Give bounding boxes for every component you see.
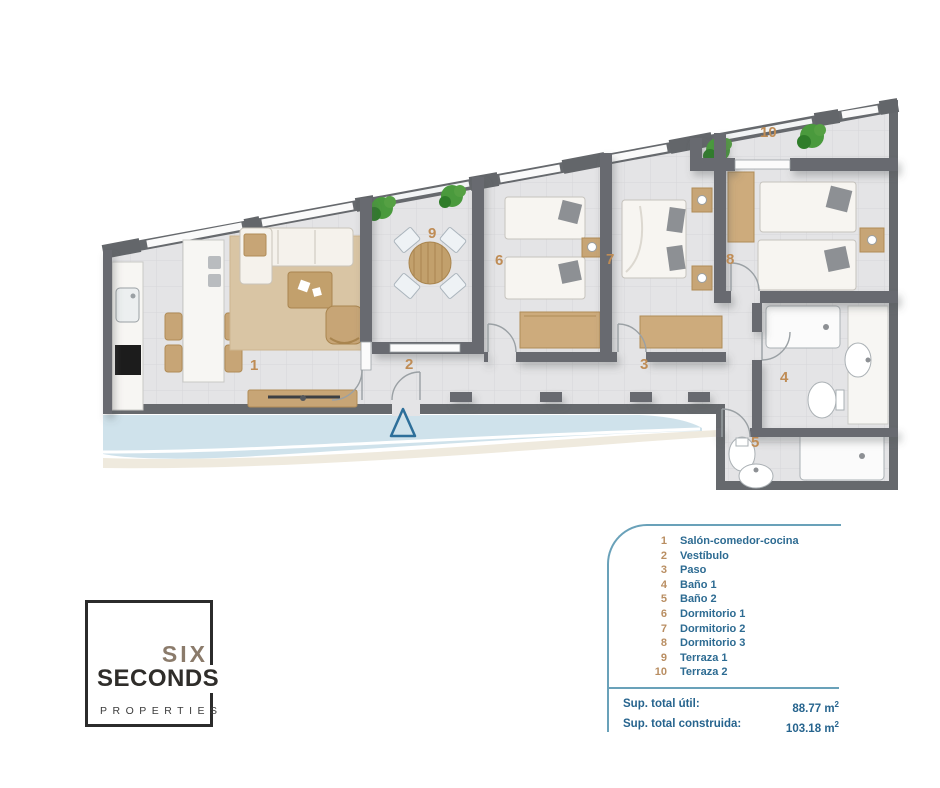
legend-room-number: 4 [609,578,667,593]
wall-stub [484,352,488,362]
logo-word-six: SIX [162,641,208,668]
wall-bath1-bath2 [750,428,898,437]
total-construida-value: 103.18 m2 [786,717,839,737]
logo-word-seconds: SECONDS [97,665,224,693]
wall-stub [690,138,702,158]
pillow [666,207,685,233]
room-label-1: 1 [250,357,258,374]
lamp-icon [868,236,877,245]
legend-room-name: Paso [680,563,706,578]
legend-row: 3 Paso [609,563,841,578]
legend-row: 6 Dormitorio 1 [609,607,841,622]
room-label-3: 3 [640,356,648,373]
floorplan-page: 1 2 3 4 5 6 7 8 9 10 1 Salón-comedor-coc… [0,0,940,788]
legend-row: 9 Terraza 1 [609,651,841,666]
terrace-window [735,160,790,169]
hob-icon [208,274,221,287]
legend-panel: 1 Salón-comedor-cocina 2 Vestíbulo 3 Pas… [607,524,841,732]
total-construida-label: Sup. total construida: [623,717,741,737]
wall-pillar [880,105,898,108]
wall-pilaster [540,392,562,402]
wall-bath1-left [752,303,762,332]
legend-room-number: 7 [609,622,667,637]
total-util-row: Sup. total útil: 88.77 m2 [623,697,839,717]
room-label-6: 6 [495,252,503,269]
wardrobe [520,312,600,348]
legend-row: 7 Dormitorio 2 [609,622,841,637]
legend-row: 8 Dormitorio 3 [609,636,841,651]
pillow [824,246,850,272]
room-label-7: 7 [606,251,614,268]
faucet-icon [131,294,136,299]
wall-living-terrace [360,198,372,342]
legend-room-number: 5 [609,592,667,607]
wall-pilaster [688,392,710,402]
lamp-icon [588,243,597,252]
legend-row: 1 Salón-comedor-cocina [609,534,841,549]
room-label-8: 8 [726,251,734,268]
legend-room-name: Vestíbulo [680,549,729,564]
legend-totals: Sup. total útil: 88.77 m2 Sup. total con… [609,697,841,737]
dining-chair [165,345,182,372]
coffee-table [288,272,332,308]
legend-room-number: 2 [609,549,667,564]
kitchen-counter [112,262,143,410]
legend-room-number: 8 [609,636,667,651]
wardrobe [728,172,754,242]
tv-stand-icon [300,395,306,401]
brand-logo: SIX SECONDS PROPERTIES [85,600,213,727]
logo-word-properties: PROPERTIES [100,705,223,717]
wall-bed8-bottom [760,291,898,303]
wall-terrace-bed6 [472,177,484,354]
total-util-value: 88.77 m2 [792,697,839,717]
legend-room-number: 3 [609,563,667,578]
wall-pillar [815,116,839,120]
side-table [244,234,266,256]
wall [103,250,112,414]
legend-room-name: Baño 2 [680,592,717,607]
wall-stub [726,291,731,303]
dining-chair [165,313,182,340]
total-util-label: Sup. total útil: [623,697,700,717]
room-label-2: 2 [405,356,413,373]
legend-room-number: 10 [609,665,667,680]
legend-room-name: Terraza 2 [680,665,728,680]
room-label-9: 9 [428,225,436,242]
legend-room-name: Dormitorio 2 [680,622,745,637]
stove [115,345,141,375]
shower-drain-icon [859,453,865,459]
wall-terrace2-bottom [790,158,898,171]
wall-pillar [245,223,260,226]
shower-drain-icon [823,324,829,330]
legend-room-name: Dormitorio 3 [680,636,745,651]
wall-pillar [563,159,605,167]
legend-room-name: Dormitorio 1 [680,607,745,622]
legend-row: 2 Vestíbulo [609,549,841,564]
room-label-10: 10 [760,124,777,141]
room-label-4: 4 [780,369,789,386]
legend-room-number: 1 [609,534,667,549]
wall-pilaster [630,392,652,402]
shower [800,432,884,480]
hob-icon [208,256,221,269]
legend-row: 10 Terraza 2 [609,665,841,680]
wall-bath1-left [752,360,762,428]
pillow [666,245,685,271]
wall-stub [716,428,722,437]
faucet-icon [754,468,759,473]
wall-terrace2-bottom [690,158,735,171]
legend-room-number: 9 [609,651,667,666]
pillow [558,260,582,284]
faucet-icon [866,358,871,363]
legend-room-name: Baño 1 [680,578,717,593]
lamp-icon [698,196,707,205]
legend-divider [609,687,839,689]
kitchen-sink [116,288,139,322]
terrace-table [409,242,451,284]
lamp-icon [698,274,707,283]
wardrobe [640,316,722,348]
room-label-5: 5 [751,434,759,451]
legend-room-name: Salón-comedor-cocina [680,534,799,549]
glass-door [361,342,371,370]
legend-row: 4 Baño 1 [609,578,841,593]
wall-bedrooms-hall [646,352,726,362]
legend-room-name: Terraza 1 [680,651,728,666]
total-construida-row: Sup. total construida: 103.18 m2 [623,717,839,737]
wall-pilaster [450,392,472,402]
wall-bedrooms-hall [516,352,617,362]
legend-room-number: 6 [609,607,667,622]
terrace-window [390,344,460,352]
legend-list: 1 Salón-comedor-cocina 2 Vestíbulo 3 Pas… [609,526,841,680]
legend-row: 5 Baño 2 [609,592,841,607]
